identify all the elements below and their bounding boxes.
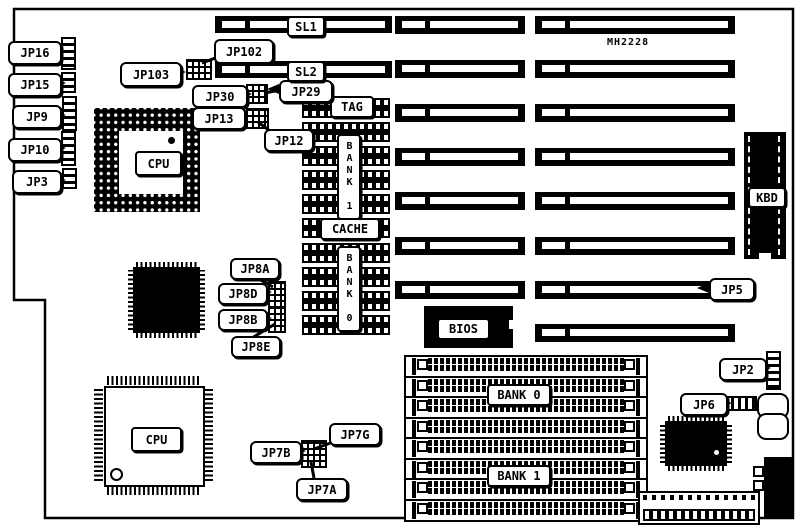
kbd-notch — [759, 253, 771, 259]
qfp-pins-left — [94, 389, 103, 481]
chip-pins-right — [200, 270, 205, 330]
bios-notch — [509, 320, 514, 329]
chip-pins-left — [128, 270, 133, 330]
jp6-label: JP6 — [680, 393, 728, 416]
jp5-label: JP5 — [709, 278, 755, 301]
chip-pins-bottom — [136, 333, 197, 338]
jp102-label: JP102 — [214, 39, 274, 64]
chip-pins-top — [668, 416, 724, 421]
kbd-label: KBD — [748, 187, 786, 208]
chip-pins-top — [136, 262, 197, 267]
pin1-marker — [168, 137, 175, 144]
sl1-label: SL1 — [287, 16, 325, 37]
jp8e-label: JP8E — [231, 336, 281, 358]
sl2-label: SL2 — [287, 61, 325, 82]
jp7b-label: JP7B — [250, 441, 302, 464]
isa-slot-segment — [395, 16, 525, 34]
bank1-simm-label: BANK 1 — [487, 465, 551, 487]
chip-pins-left — [660, 424, 665, 463]
motherboard-diagram: MH2228 TAG BANK 1 CACHE BANK 0 CPU CPU B… — [0, 0, 800, 527]
isa-slot-segment — [395, 148, 525, 166]
qfp-pins-top — [107, 376, 199, 385]
power-connector — [638, 491, 760, 525]
isa-slot-segment — [535, 148, 735, 166]
isa-slot-segment — [395, 237, 525, 255]
jp9-label: JP9 — [12, 105, 62, 129]
din-pad — [753, 480, 764, 491]
bank0-cache-label: BANK 0 — [337, 246, 361, 332]
jp30-label: JP30 — [192, 85, 248, 108]
isa-slot-segment — [535, 324, 735, 342]
part-number: MH2228 — [607, 37, 649, 48]
chip — [665, 421, 727, 466]
isa-slot-segment — [395, 104, 525, 122]
din-pad — [753, 466, 764, 477]
jp13-label: JP13 — [192, 107, 246, 130]
jp29-label: JP29 — [279, 80, 333, 103]
cpu-qfp-label: CPU — [131, 427, 182, 452]
isa-slot-segment — [535, 192, 735, 210]
qfp-pins-bottom — [107, 486, 199, 495]
qfp-pins-right — [204, 389, 213, 481]
jp102-jp103-header — [186, 59, 212, 80]
isa-slot-segment — [535, 60, 735, 78]
keyboard-din-connector — [764, 457, 794, 517]
chip-pins-bottom — [668, 466, 724, 471]
cache-label: CACHE — [320, 218, 380, 240]
isa-slot-segment — [395, 281, 525, 299]
isa-slot-segment — [535, 16, 735, 34]
chip-pins-right — [727, 424, 732, 463]
tag-label: TAG — [330, 96, 374, 118]
isa-slot-segment — [395, 60, 525, 78]
jp7g-label: JP7G — [329, 423, 381, 446]
jp8b-label: JP8B — [218, 309, 268, 331]
jp16-label: JP16 — [8, 41, 62, 65]
jp12-label: JP12 — [264, 129, 314, 152]
jp103-label: JP103 — [120, 62, 182, 87]
jp7a-label: JP7A — [296, 478, 348, 501]
isa-slot-segment — [535, 237, 735, 255]
cpu-pga-label: CPU — [135, 151, 182, 176]
chip — [133, 267, 200, 333]
jp3-label: JP3 — [12, 170, 62, 194]
jp8d-label: JP8D — [218, 283, 268, 305]
isa-slot-segment — [535, 104, 735, 122]
jp8a-label: JP8A — [230, 258, 280, 280]
bios-label: BIOS — [437, 318, 490, 340]
component-outline — [757, 413, 789, 440]
jp10-label: JP10 — [8, 138, 62, 162]
jp2-label: JP2 — [719, 358, 767, 381]
simm-socket — [404, 355, 648, 378]
bank1-cache-label: BANK 1 — [337, 134, 361, 220]
simm-socket — [404, 499, 648, 522]
jp15-label: JP15 — [8, 73, 62, 97]
pin1-marker — [110, 468, 123, 481]
bank0-simm-label: BANK 0 — [487, 384, 551, 406]
simm-socket — [404, 437, 648, 460]
isa-slot-segment — [395, 192, 525, 210]
